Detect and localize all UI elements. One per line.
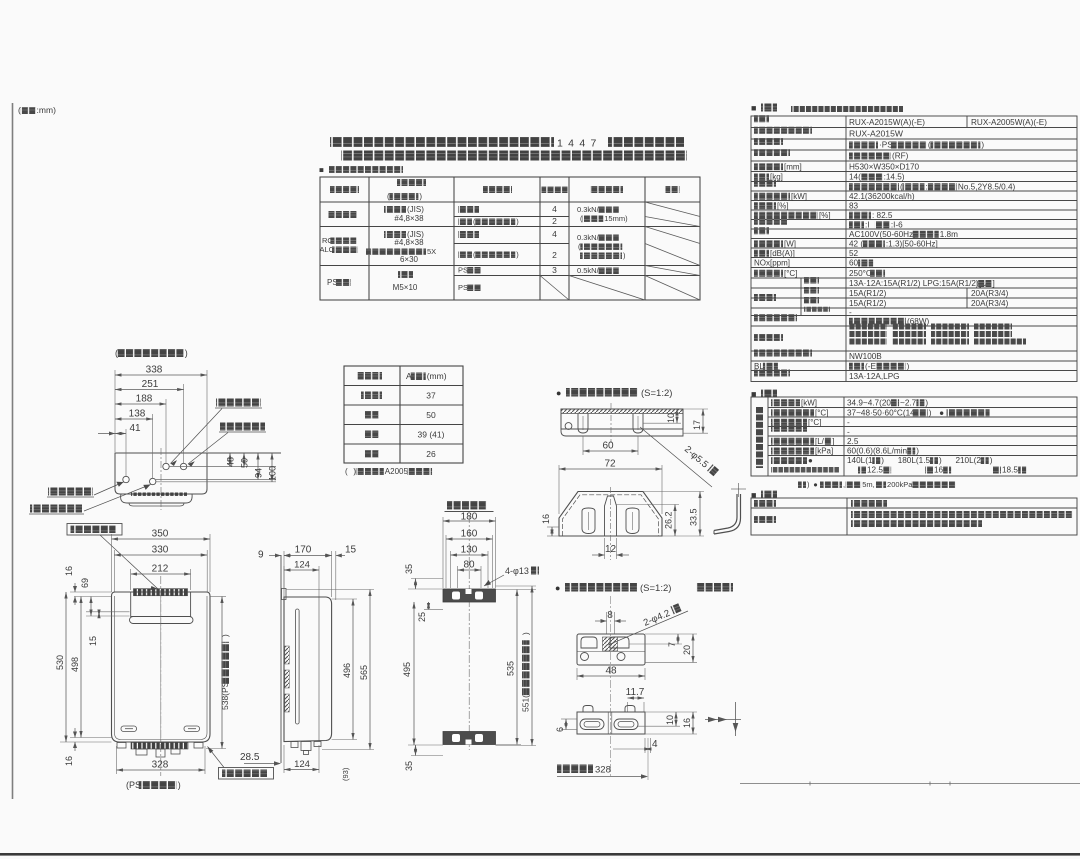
svg-text:15mm): 15mm) [604,214,628,223]
svg-text:69: 69 [80,578,90,588]
svg-text:10: 10 [666,413,676,423]
svg-text:8: 8 [607,610,613,621]
svg-text:41: 41 [129,423,141,434]
svg-text:4: 4 [552,229,557,239]
svg-text:-: - [847,427,850,436]
svg-text:): ) [916,447,919,456]
svg-text:140L(1: 140L(1 [847,456,873,465]
svg-text:-: - [849,308,852,317]
svg-text:16: 16 [64,756,74,766]
svg-text:[kPa]: [kPa] [815,447,833,456]
svg-text:124: 124 [294,759,310,770]
svg-text:●: ● [556,388,561,398]
svg-text:1 4 4 7: 1 4 4 7 [557,138,598,150]
svg-text:6: 6 [555,727,565,732]
svg-text:13A·12A:15A(R1/2) LPG:15A(R1/2: 13A·12A:15A(R1/2) LPG:15A(R1/2)[U [849,279,987,288]
svg-text:-: - [847,418,850,427]
svg-text:170: 170 [295,545,312,556]
svg-text:210L(2: 210L(2 [955,456,981,465]
svg-text:(93): (93) [341,767,350,781]
svg-text:20: 20 [682,645,692,655]
svg-text:): ) [220,634,230,637]
svg-text:NOx[ppm]: NOx[ppm] [754,259,790,268]
svg-text:#4,8×38: #4,8×38 [394,238,424,247]
svg-text:): ) [907,362,910,371]
svg-text:●: ● [808,456,813,465]
svg-text:33.5: 33.5 [689,508,699,526]
svg-text:■: ■ [751,389,756,399]
svg-text:): ) [939,456,942,465]
svg-text:212: 212 [152,564,169,575]
svg-text:(-E: (-E [865,362,876,371]
svg-text:3: 3 [552,265,557,275]
svg-text:): ) [178,780,181,790]
svg-text:18.5: 18.5 [1002,466,1018,475]
svg-text:48: 48 [605,666,617,677]
svg-text:35: 35 [404,564,414,574]
svg-text:26.2: 26.2 [664,511,674,529]
svg-text:28.5: 28.5 [240,752,260,763]
svg-text:495: 495 [402,662,412,677]
svg-text:,: , [843,480,845,489]
svg-text:[kW]: [kW] [801,398,817,407]
svg-text:12: 12 [605,544,617,555]
svg-text:M5×10: M5×10 [393,283,418,292]
svg-text:188: 188 [136,394,153,405]
svg-text:H530×W350×D170: H530×W350×D170 [849,162,920,171]
svg-text:●: ● [813,480,818,489]
svg-text:15: 15 [88,636,98,646]
svg-text:AC100V(50-60Hz): AC100V(50-60Hz) [849,230,916,239]
svg-text:100: 100 [268,466,278,481]
svg-text:[°C]: [°C] [784,269,797,278]
svg-text:■: ■ [751,103,756,113]
svg-text:[%]: [%] [819,211,831,220]
svg-text:10: 10 [665,715,675,725]
svg-text:): ) [521,632,531,635]
svg-text:A2005: A2005 [385,467,409,476]
svg-text:RUX-A2015W: RUX-A2015W [849,128,904,138]
svg-text:RUX-A2015W(A)(-E): RUX-A2015W(A)(-E) [849,118,925,127]
svg-text:(RF): (RF) [892,152,909,161]
svg-text:83: 83 [849,201,859,210]
svg-text:52: 52 [849,249,859,258]
svg-text:124: 124 [294,560,310,571]
svg-text:●: ● [939,408,944,417]
svg-text:0.3kN/: 0.3kN/ [577,205,600,214]
svg-text:): ) [990,456,993,465]
svg-text:25: 25 [417,612,427,622]
svg-text:60: 60 [602,441,614,452]
svg-text:250°C: 250°C [849,269,872,278]
svg-text:~2.7: ~2.7 [900,398,917,407]
svg-text::I: :I [865,220,870,229]
svg-text:5m,: 5m, [862,480,875,489]
svg-text:■: ■ [751,490,756,500]
svg-text:[°C]: [°C] [815,408,828,417]
svg-text:(: ( [345,467,348,476]
svg-text:(JIS): (JIS) [407,205,424,214]
svg-text:328: 328 [595,765,611,776]
svg-text:50: 50 [426,410,436,420]
svg-text:12.5: 12.5 [867,466,883,475]
svg-text:338: 338 [146,365,163,376]
svg-text::I-6: :I-6 [891,220,903,229]
svg-text:20A(R3/4): 20A(R3/4) [971,299,1009,308]
svg-text:538(PS: 538(PS [220,681,230,710]
svg-text::: : [925,182,927,191]
svg-text:(S=1:2): (S=1:2) [641,388,672,399]
svg-text:15: 15 [345,545,357,556]
svg-text:565: 565 [359,665,369,680]
svg-text:530: 530 [55,655,65,670]
svg-text:37: 37 [426,391,436,401]
svg-text:[L/: [L/ [815,437,825,446]
svg-text:42 (: 42 ( [849,239,863,248]
svg-text:1.8m: 1.8m [940,230,958,239]
svg-text:4: 4 [652,739,658,750]
svg-text:4: 4 [552,204,557,214]
svg-text:16: 16 [64,566,74,576]
svg-text:9: 9 [258,550,264,561]
svg-text:34.9~4.7(20: 34.9~4.7(20 [847,398,891,407]
svg-text:): ) [929,408,932,417]
svg-text:328: 328 [152,760,169,771]
svg-text:]: ] [832,437,834,446]
svg-text:17: 17 [692,420,702,430]
svg-text:[kW]: [kW] [791,192,807,201]
svg-text:200kPa: 200kPa [887,480,913,489]
svg-text:: 82.5: : 82.5 [872,211,893,220]
svg-text:): ) [981,141,984,150]
svg-text:(S=1:2): (S=1:2) [640,583,671,594]
svg-text:#4,8×38: #4,8×38 [394,214,424,223]
svg-text:60: 60 [849,259,859,268]
svg-text:RUX-A2005W(A)(-E): RUX-A2005W(A)(-E) [971,118,1047,127]
svg-text:251: 251 [142,379,159,390]
svg-text:26: 26 [426,449,436,459]
svg-text:72: 72 [604,459,616,470]
svg-text:]: ] [993,279,995,288]
svg-text:37~48·50·60°C(14: 37~48·50·60°C(14 [847,408,915,417]
svg-text:4-φ13: 4-φ13 [505,566,529,576]
svg-text:0.5kN/: 0.5kN/ [577,266,600,275]
svg-text:350: 350 [152,529,169,540]
svg-text:No.5,2Y8.5/0.4): No.5,2Y8.5/0.4) [958,182,1016,191]
svg-text:13A·12A,LPG: 13A·12A,LPG [849,372,900,381]
svg-text:●: ● [555,583,560,593]
svg-text::14.5): :14.5) [884,173,905,182]
svg-text:94: 94 [254,468,264,478]
svg-text:15A(R1/2): 15A(R1/2) [849,289,887,298]
svg-text:BL: BL [754,362,764,371]
svg-text:): ) [925,398,928,407]
svg-text:(mm): (mm) [427,371,447,381]
svg-text:48: 48 [226,457,236,467]
svg-text:[°C]: [°C] [808,418,821,427]
svg-text::mm): :mm) [37,105,57,115]
svg-text:■: ■ [319,166,324,175]
svg-text:2: 2 [552,216,557,226]
svg-text:): ) [185,348,188,358]
svg-text:498: 498 [70,657,80,672]
svg-text:330: 330 [152,545,169,556]
svg-text:0.3kN/: 0.3kN/ [577,233,600,242]
svg-text:496: 496 [342,663,352,678]
svg-text:2.5: 2.5 [847,437,859,446]
svg-text:42.1(36200kcal/h): 42.1(36200kcal/h) [849,192,915,201]
svg-text:138: 138 [129,409,146,420]
svg-text:16: 16 [682,718,692,728]
svg-text:): ) [881,456,884,465]
svg-text:535: 535 [506,661,516,676]
svg-text:11.7: 11.7 [626,687,645,698]
svg-text:5X: 5X [427,247,436,256]
svg-text:NW100B: NW100B [849,352,882,361]
svg-text:16: 16 [934,466,944,475]
svg-text:14(: 14( [849,173,861,182]
svg-text:60(0.6)(8.6L/min: 60(0.6)(8.6L/min [847,447,908,456]
svg-text:): ) [419,192,422,201]
svg-text::1.3)[50-60Hz]: :1.3)[50-60Hz] [886,239,938,248]
svg-text:16: 16 [541,514,551,524]
svg-text:2: 2 [552,250,557,260]
svg-text:180L(1.5: 180L(1.5 [898,456,931,465]
svg-text:20A(R3/4): 20A(R3/4) [971,289,1009,298]
svg-text:15A(R1/2): 15A(R1/2) [849,299,887,308]
svg-text:551(: 551( [521,695,531,712]
svg-text:7: 7 [667,642,677,647]
svg-text:[dB(A)]: [dB(A)] [770,249,795,258]
svg-text:[%]: [%] [777,201,789,210]
svg-text:39 (41): 39 (41) [418,430,445,440]
svg-text:(: ( [115,348,118,358]
svg-text:50: 50 [240,458,250,468]
svg-text:6×30: 6×30 [400,255,419,264]
svg-text:35: 35 [404,761,414,771]
svg-text:[mm]: [mm] [784,162,802,171]
svg-text:[W]: [W] [784,239,796,248]
